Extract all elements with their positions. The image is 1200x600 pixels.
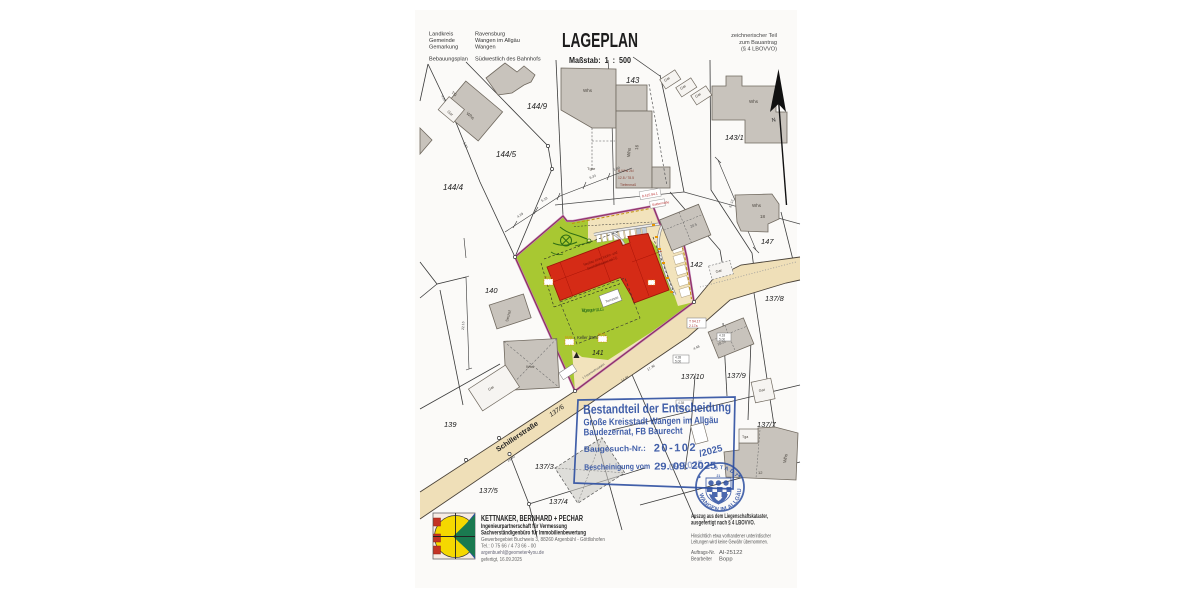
svg-text:12.8 / 78.5: 12.8 / 78.5 xyxy=(618,176,634,180)
svg-text:Whs: Whs xyxy=(752,203,762,208)
svg-text:16: 16 xyxy=(634,144,639,150)
svg-text:Leitungen wird keine Gewähr üb: Leitungen wird keine Gewähr übernommen. xyxy=(691,540,768,546)
svg-text:Bearbeiter: Bearbeiter xyxy=(691,557,712,563)
svg-text:Bescheinigung vom: Bescheinigung vom xyxy=(584,462,650,472)
svg-text:12.34: 12.34 xyxy=(544,275,552,279)
svg-text:zum Bauantrag: zum Bauantrag xyxy=(739,40,777,46)
svg-text:Whs: Whs xyxy=(526,364,534,369)
svg-text:Sachverständigenbüro für Immob: Sachverständigenbüro für Immobilienbewer… xyxy=(481,530,586,537)
svg-text:137/5: 137/5 xyxy=(479,486,499,495)
svg-text:22.16: 22.16 xyxy=(461,321,465,330)
svg-text:Bebauungsplan: Bebauungsplan xyxy=(429,57,468,63)
svg-text:137/8: 137/8 xyxy=(765,294,785,303)
svg-text:20-102: 20-102 xyxy=(654,442,697,455)
svg-text:21: 21 xyxy=(717,474,721,478)
svg-text:10.01: 10.01 xyxy=(598,332,606,336)
svg-text:argenbuehl@geometer4you.de: argenbuehl@geometer4you.de xyxy=(481,550,544,556)
svg-text:143: 143 xyxy=(626,76,640,85)
svg-text:Gewerbegebiet Buchweis 3, 882: Gewerbegebiet Buchweis 3, 88260 Argenbüh… xyxy=(481,537,605,543)
svg-text:142: 142 xyxy=(690,260,703,269)
svg-text:Tel.: 0 75 66 / 4 73 66 - 00: Tel.: 0 75 66 / 4 73 66 - 00 xyxy=(481,544,536,550)
svg-text:gefertigt, 16.09.2025: gefertigt, 16.09.2025 xyxy=(481,557,522,563)
svg-text:T 94.17: T 94.17 xyxy=(689,320,701,324)
svg-text:Wangen: Wangen xyxy=(475,45,496,51)
svg-text:18: 18 xyxy=(760,214,766,219)
svg-text:Maßstab: 1 : 500: Maßstab: 1 : 500 xyxy=(569,55,631,65)
svg-text:Bopp: Bopp xyxy=(719,557,733,563)
svg-text:Gemeinde: Gemeinde xyxy=(429,38,455,44)
svg-text:Whs: Whs xyxy=(583,88,593,93)
svg-text:137/4: 137/4 xyxy=(549,497,568,506)
svg-text:zeichnerischer Teil: zeichnerischer Teil xyxy=(731,33,777,39)
svg-text:Whs: Whs xyxy=(626,147,632,157)
svg-text:12: 12 xyxy=(758,470,763,475)
svg-text:Landkreis: Landkreis xyxy=(429,32,453,38)
svg-text:147: 147 xyxy=(761,237,774,246)
svg-text:2.17a: 2.17a xyxy=(689,324,698,328)
svg-text:141: 141 xyxy=(592,350,604,357)
svg-text:Gemarkung: Gemarkung xyxy=(429,45,458,51)
svg-text:144/5: 144/5 xyxy=(496,150,517,159)
svg-text:5.00: 5.00 xyxy=(719,337,725,341)
svg-text:10.01: 10.01 xyxy=(565,335,573,339)
svg-text:Tgar: Tgar xyxy=(587,166,596,171)
svg-text:137/3: 137/3 xyxy=(535,462,555,471)
svg-text:137/7: 137/7 xyxy=(757,420,777,429)
svg-text:Whs: Whs xyxy=(749,99,759,104)
svg-text:AI-25122: AI-25122 xyxy=(719,550,743,556)
svg-text:139: 139 xyxy=(444,420,457,429)
svg-text:144/9: 144/9 xyxy=(527,102,548,111)
svg-text:Auftrags-Nr.: Auftrags-Nr. xyxy=(691,550,715,556)
svg-text:Auszug aus dem Liegenschaftska: Auszug aus dem Liegenschaftskataster, xyxy=(691,514,768,520)
svg-text:Wangen im Allgäu: Wangen im Allgäu xyxy=(475,38,520,44)
svg-text:Südwestlich des Bahnhofs: Südwestlich des Bahnhofs xyxy=(475,57,541,63)
svg-text:LAGEPLAN: LAGEPLAN xyxy=(562,30,638,52)
svg-text:143/1: 143/1 xyxy=(725,133,744,142)
svg-text:ausgefertigt nach § 4 LBOVVO.: ausgefertigt nach § 4 LBOVVO. xyxy=(691,521,755,527)
svg-text:144/4: 144/4 xyxy=(443,183,464,192)
svg-text:140: 140 xyxy=(485,286,498,295)
svg-text:5.00: 5.00 xyxy=(675,359,681,363)
svg-text:137/9: 137/9 xyxy=(727,371,747,380)
svg-text:(§ 4 LBOVVO): (§ 4 LBOVVO) xyxy=(741,47,777,53)
svg-text:KETTNAKER, BERNHARD + PECHAR: KETTNAKER, BERNHARD + PECHAR xyxy=(481,514,583,523)
svg-text:Tga: Tga xyxy=(742,435,748,439)
svg-text:Tiefenmaß: Tiefenmaß xyxy=(620,183,636,187)
svg-text:Baugesuch-Nr.:: Baugesuch-Nr.: xyxy=(584,444,646,454)
svg-text:Baudezernat, FB Baurecht: Baudezernat, FB Baurecht xyxy=(583,426,683,439)
svg-text:Ravensburg: Ravensburg xyxy=(475,32,505,38)
svg-text:137/10: 137/10 xyxy=(681,372,705,381)
